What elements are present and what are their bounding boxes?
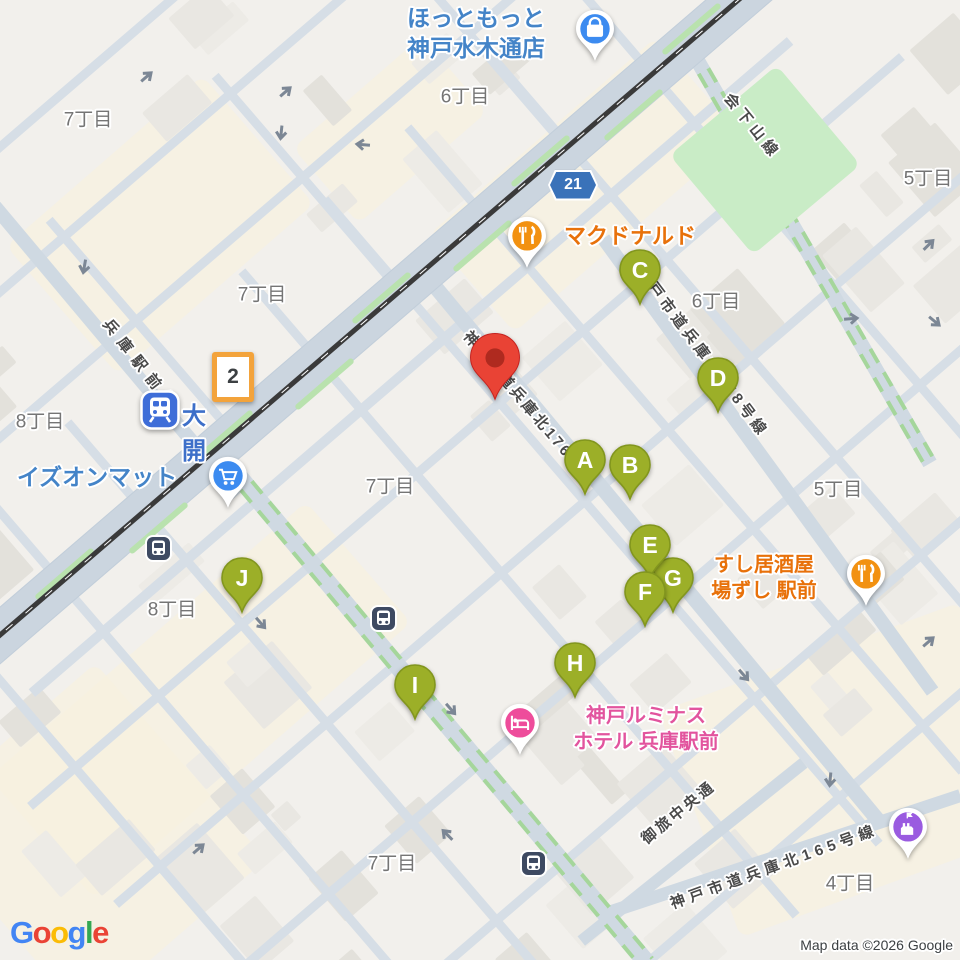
google-logo-letter: e: [92, 915, 108, 950]
svg-text:H: H: [567, 650, 584, 676]
district-label: 7丁目: [238, 280, 287, 307]
svg-text:F: F: [638, 579, 652, 605]
poi-pin-bed-icon[interactable]: [499, 702, 541, 757]
svg-text:B: B: [622, 452, 639, 478]
oneway-arrow-icon: [349, 137, 372, 152]
poi-pin-cart-icon[interactable]: [207, 455, 249, 510]
poi-pin-restaurant-icon[interactable]: [506, 215, 548, 270]
district-label: 6丁目: [441, 82, 490, 109]
option-marker-I[interactable]: I: [393, 663, 437, 726]
svg-text:E: E: [642, 532, 657, 558]
district-label: 7丁目: [366, 472, 415, 499]
option-marker-D[interactable]: D: [696, 356, 740, 419]
poi-pin-restaurant-icon[interactable]: [845, 553, 887, 608]
bus-stop-icon[interactable]: [370, 605, 397, 632]
option-marker-F[interactable]: F: [623, 570, 667, 633]
bus-stop-icon[interactable]: [145, 535, 172, 562]
option-marker-H[interactable]: H: [553, 641, 597, 704]
train-icon[interactable]: [140, 390, 180, 430]
building: [909, 13, 960, 96]
svg-text:J: J: [236, 565, 249, 591]
option-marker-C[interactable]: C: [618, 248, 662, 311]
district-label: 6丁目: [692, 287, 741, 314]
district-label: 7丁目: [64, 105, 113, 132]
district-label: 7丁目: [368, 849, 417, 876]
destination-pin-icon[interactable]: [468, 331, 522, 407]
svg-text:D: D: [710, 365, 727, 391]
oneway-arrow-icon: [823, 769, 838, 792]
map-canvas[interactable]: 7丁目6丁目5丁目7丁目6丁目8丁目7丁目5丁目8丁目7丁目4丁目会下山線兵庫駅…: [0, 0, 960, 960]
station-name-label[interactable]: 大開: [182, 396, 206, 466]
google-logo-letter: l: [85, 915, 92, 950]
option-marker-A[interactable]: A: [563, 438, 607, 501]
district-label: 5丁目: [904, 164, 953, 191]
option-marker-J[interactable]: J: [220, 556, 264, 619]
map-attribution: Map data ©2026 Google: [800, 937, 953, 953]
route-badge-21-label: 21: [550, 172, 596, 199]
building: [0, 346, 16, 393]
poi-label-is-on-mat[interactable]: イズオンマット: [17, 463, 177, 493]
google-logo-letter: o: [50, 915, 67, 950]
poi-pin-shopping-bag-icon[interactable]: [574, 8, 616, 63]
district-label: 8丁目: [16, 407, 65, 434]
poi-label-kobe-luminous-hotel[interactable]: 神戸ルミナスホテル 兵庫駅前: [573, 703, 719, 755]
district-label: 8丁目: [148, 595, 197, 622]
svg-text:C: C: [632, 257, 649, 283]
district-label: 5丁目: [814, 475, 863, 502]
oneway-arrow-icon: [274, 78, 299, 102]
poi-label-hotto-motto[interactable]: ほっともっと神戸水木通店: [407, 4, 545, 64]
poi-label-sushi-izakaya[interactable]: すし居酒屋場ずし 駅前: [711, 552, 817, 604]
svg-text:A: A: [577, 447, 594, 473]
route-badge-21: 21: [548, 170, 598, 201]
building: [859, 171, 904, 218]
route-badge-2: 2: [212, 352, 254, 402]
google-logo[interactable]: Google: [10, 915, 108, 951]
google-logo-letter: G: [10, 915, 33, 950]
oneway-arrow-icon: [135, 63, 160, 87]
bus-stop-icon[interactable]: [520, 850, 547, 877]
oneway-arrow-icon: [273, 122, 288, 145]
google-logo-letter: g: [68, 915, 85, 950]
poi-pin-temple-icon[interactable]: [887, 806, 929, 861]
poi-label-mcdonalds[interactable]: マクドナルド: [564, 223, 696, 252]
oneway-arrow-icon: [841, 311, 864, 326]
svg-text:I: I: [412, 672, 418, 698]
option-marker-B[interactable]: B: [608, 443, 652, 506]
district-label: 4丁目: [826, 869, 875, 896]
google-logo-letter: o: [33, 915, 50, 950]
